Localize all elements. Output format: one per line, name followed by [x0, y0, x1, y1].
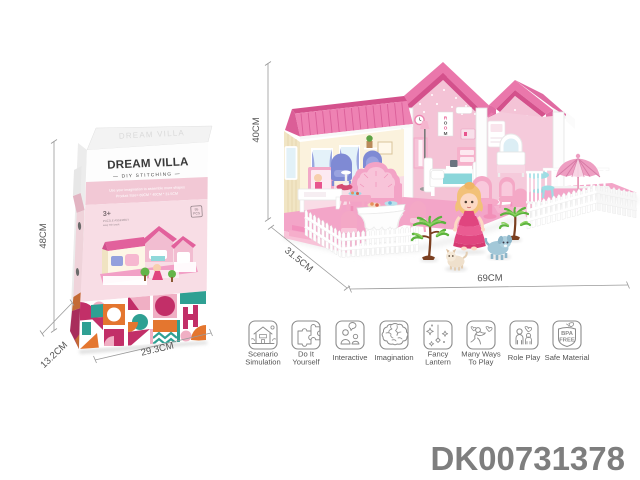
svg-text:40CM: 40CM	[251, 117, 262, 142]
svg-text:BPA: BPA	[561, 331, 574, 337]
svg-text:DK00731378: DK00731378	[431, 440, 626, 477]
svg-text:PCS: PCS	[193, 211, 201, 215]
svg-text:Safe Material: Safe Material	[545, 353, 590, 362]
svg-text:Interactive: Interactive	[332, 353, 367, 362]
svg-text:Lantern: Lantern	[425, 358, 451, 367]
svg-text:FREE: FREE	[559, 338, 575, 344]
svg-text:48CM: 48CM	[38, 223, 49, 248]
svg-text:3+: 3+	[103, 211, 111, 218]
svg-text:To Play: To Play	[469, 358, 494, 367]
svg-text:Simulation: Simulation	[245, 358, 280, 367]
svg-text:Imagination: Imagination	[374, 353, 413, 362]
svg-text:Role Play: Role Play	[508, 353, 541, 362]
svg-text:Yourself: Yourself	[292, 358, 320, 367]
svg-text:69CM: 69CM	[477, 273, 503, 284]
svg-text:M: M	[444, 131, 448, 136]
